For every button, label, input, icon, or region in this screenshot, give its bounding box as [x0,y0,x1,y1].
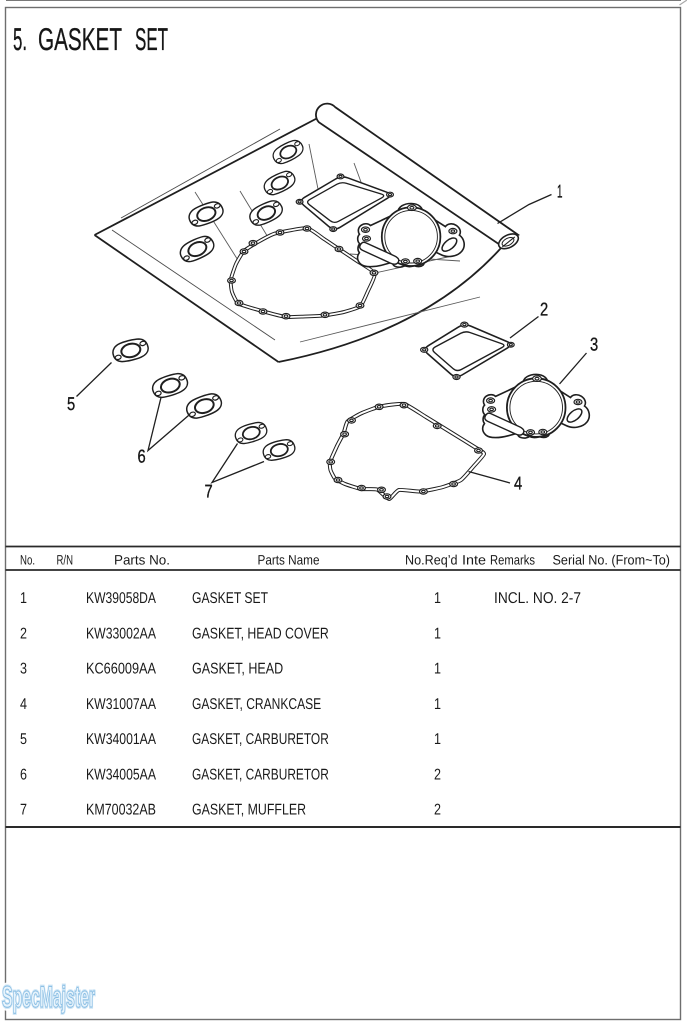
svg-text:GASKET SET: GASKET SET [192,590,268,607]
svg-text:KC66009AA: KC66009AA [86,661,156,678]
svg-text:GASKET, CARBURETOR: GASKET, CARBURETOR [192,731,329,748]
svg-text:INCL. NO. 2-7: INCL. NO. 2-7 [494,590,581,607]
svg-text:GASKET, HEAD: GASKET, HEAD [192,661,283,678]
svg-text:4: 4 [514,473,522,494]
svg-text:1: 1 [557,181,563,202]
svg-text:GASKET: GASKET [38,21,122,57]
svg-text:1: 1 [434,625,441,642]
svg-text:Parts Name: Parts Name [258,553,320,568]
svg-text:2: 2 [434,766,441,783]
svg-text:SpecMajster: SpecMajster [2,981,95,1014]
svg-text:KW33002AA: KW33002AA [86,625,156,642]
svg-text:1: 1 [434,590,441,607]
svg-text:GASKET, HEAD COVER: GASKET, HEAD COVER [192,625,329,642]
svg-text:KW39058DA: KW39058DA [86,590,156,607]
svg-text:1: 1 [434,661,441,678]
svg-text:R/N: R/N [57,553,74,568]
svg-text:Inte: Inte [462,553,486,568]
svg-text:GASKET, CRANKCASE: GASKET, CRANKCASE [192,696,321,713]
svg-text:1: 1 [434,731,441,748]
svg-text:6: 6 [138,446,146,467]
svg-text:GASKET, CARBURETOR: GASKET, CARBURETOR [192,766,329,783]
svg-text:6: 6 [20,766,27,783]
svg-text:5: 5 [20,731,27,748]
svg-text:Remarks: Remarks [490,553,535,568]
svg-text:5: 5 [67,393,75,414]
svg-text:1: 1 [434,696,441,713]
svg-text:KM70032AB: KM70032AB [86,802,156,819]
svg-text:SET: SET [135,21,168,57]
svg-text:2: 2 [540,299,548,320]
svg-text:GASKET, MUFFLER: GASKET, MUFFLER [192,802,306,819]
svg-text:3: 3 [590,334,598,355]
svg-text:3: 3 [20,661,27,678]
svg-text:7: 7 [20,802,27,819]
svg-text:KW31007AA: KW31007AA [86,696,156,713]
svg-text:1: 1 [20,590,27,607]
svg-text:Parts No.: Parts No. [114,553,170,568]
svg-text:7: 7 [205,481,213,502]
svg-text:4: 4 [20,696,27,713]
svg-text:5.: 5. [13,21,27,57]
svg-text:2: 2 [20,625,27,642]
svg-text:Serial No. (From~To): Serial No. (From~To) [553,553,671,568]
svg-text:2: 2 [434,802,441,819]
svg-text:No.Req’d: No.Req’d [405,553,458,568]
svg-text:KW34005AA: KW34005AA [86,766,156,783]
svg-text:No.: No. [20,553,35,568]
svg-text:KW34001AA: KW34001AA [86,731,156,748]
